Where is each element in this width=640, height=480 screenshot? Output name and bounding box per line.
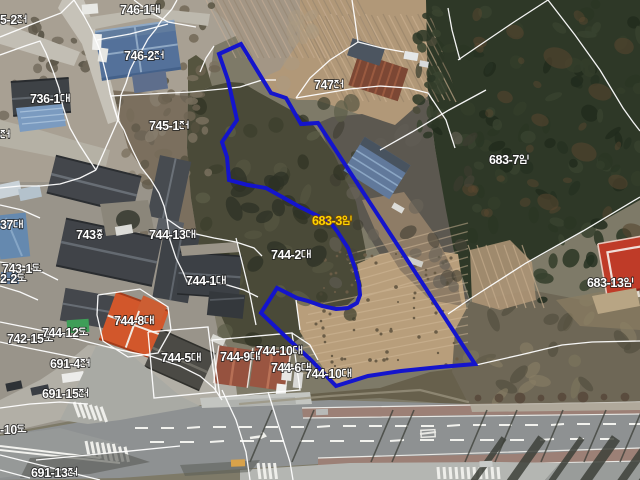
svg-text:744-1: 744-1: [186, 274, 216, 288]
svg-text:683-13: 683-13: [587, 276, 624, 290]
svg-text:744-13: 744-13: [149, 228, 186, 242]
svg-text:744-6: 744-6: [271, 361, 301, 375]
svg-text:691-4: 691-4: [50, 357, 80, 371]
svg-text:744-10: 744-10: [305, 367, 342, 381]
svg-text:691-13: 691-13: [31, 466, 68, 480]
svg-text:744-2: 744-2: [271, 248, 301, 262]
svg-text:743: 743: [76, 228, 96, 242]
svg-text:746-2: 746-2: [124, 49, 154, 63]
svg-text:683-3: 683-3: [312, 214, 342, 228]
svg-text:744-10: 744-10: [256, 344, 293, 358]
svg-text:-10: -10: [0, 423, 17, 437]
svg-text:5-2: 5-2: [0, 13, 17, 27]
svg-text:747: 747: [314, 78, 334, 92]
svg-text:744-12: 744-12: [42, 326, 79, 340]
svg-text:736-1: 736-1: [30, 92, 60, 106]
svg-text:744-5: 744-5: [161, 351, 191, 365]
svg-text:2-2: 2-2: [0, 272, 17, 286]
svg-text:691-15: 691-15: [42, 387, 79, 401]
svg-text:742-15: 742-15: [7, 332, 44, 346]
svg-text:744-9: 744-9: [220, 350, 250, 364]
svg-text:37: 37: [0, 218, 14, 232]
svg-text:745-1: 745-1: [149, 119, 179, 133]
svg-text:683-7: 683-7: [489, 153, 519, 167]
svg-text:744-8: 744-8: [114, 314, 144, 328]
svg-text:746-1: 746-1: [120, 3, 150, 17]
